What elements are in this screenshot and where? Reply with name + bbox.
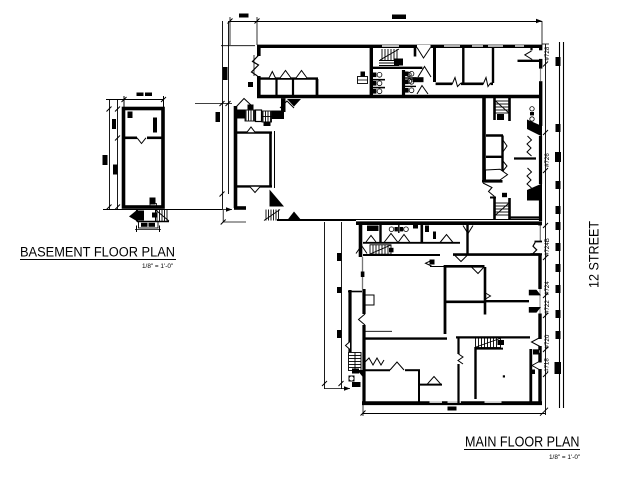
svg-text:MAIN FLOOR PLAN: MAIN FLOOR PLAN [465, 435, 580, 451]
svg-text:#722: #722 [544, 300, 551, 314]
svg-text:12 STREET: 12 STREET [587, 221, 602, 288]
svg-text:#724: #724 [544, 281, 551, 295]
svg-text:#728: #728 [544, 46, 551, 60]
svg-text:#726: #726 [544, 153, 551, 167]
svg-text:1/8" = 1'-0": 1/8" = 1'-0" [549, 454, 580, 461]
svg-text:BASEMENT FLOOR PLAN: BASEMENT FLOOR PLAN [20, 245, 175, 261]
svg-text:1/8" = 1'-0": 1/8" = 1'-0" [142, 263, 173, 270]
svg-text:#724B: #724B [544, 238, 551, 256]
svg-text:#718: #718 [544, 358, 551, 372]
svg-text:#720: #720 [544, 334, 551, 348]
